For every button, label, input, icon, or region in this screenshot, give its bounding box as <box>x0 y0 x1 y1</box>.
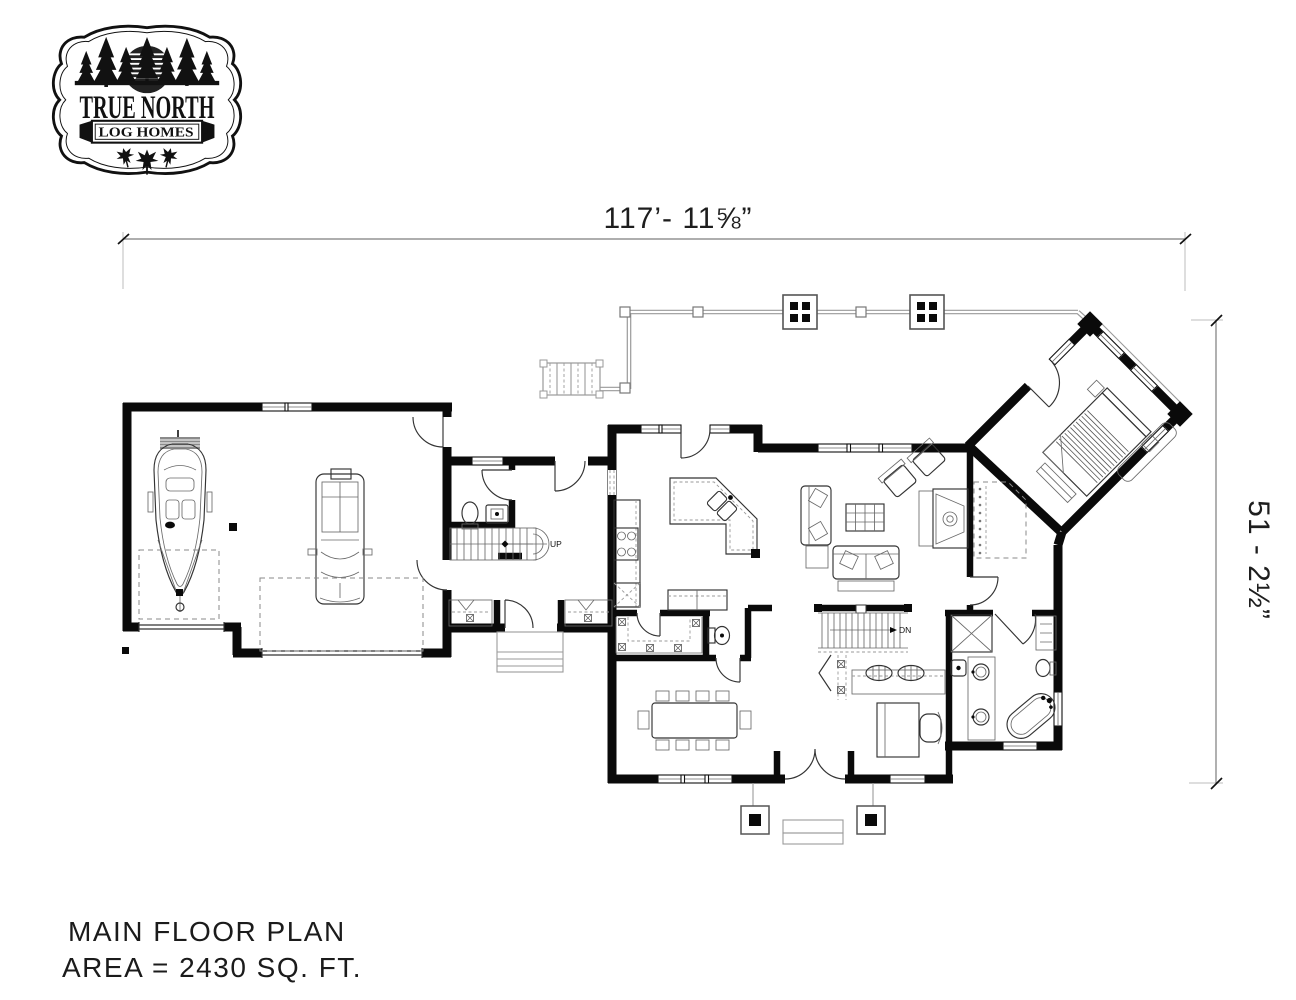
garage-post <box>229 523 237 531</box>
pickup-truck <box>308 469 372 604</box>
range-stove <box>614 528 638 560</box>
great-room-furniture <box>801 438 968 591</box>
kitchen-island <box>670 478 760 558</box>
logo-banner: LOG HOMES <box>80 121 215 143</box>
dimension-width: 117’- 11⅝” <box>118 202 1191 291</box>
wc-toilet <box>708 627 730 645</box>
dimension-width-label: 117’- 11⅝” <box>604 202 753 235</box>
fireplace <box>919 489 968 548</box>
entry-french-doors <box>785 749 845 779</box>
window <box>262 332 1168 783</box>
logo-title-text: TRUE NORTH <box>80 89 215 125</box>
stairs-up-label: UP <box>550 539 562 549</box>
sofa-horizontal <box>833 546 899 591</box>
mudroom-walls <box>443 425 616 783</box>
toilet <box>1036 660 1056 677</box>
dimension-height: 51 - 2½” <box>1189 315 1275 789</box>
mudroom-closets <box>449 600 612 626</box>
porch-steps <box>783 820 843 844</box>
stairs-down: DN <box>814 604 912 700</box>
porch-post <box>857 806 885 834</box>
office-den <box>852 666 945 758</box>
kitchen-sink <box>706 487 741 522</box>
toilet <box>951 660 966 676</box>
shower <box>951 615 992 652</box>
logo-banner-text: LOG HOMES <box>99 124 194 139</box>
buffet <box>668 590 727 610</box>
coffee-table <box>846 504 884 531</box>
master-bath <box>951 615 1061 744</box>
under-stair-closet <box>819 655 846 700</box>
island-post <box>751 549 760 558</box>
deck-steps <box>540 360 603 398</box>
vanity <box>968 657 995 740</box>
lounge-chair <box>878 459 918 499</box>
side-table <box>806 546 828 568</box>
boat <box>148 430 212 612</box>
plan-area: AREA = 2430 SQ. FT. <box>62 952 362 983</box>
stairs-up: UP <box>450 528 562 560</box>
linen-closet <box>1036 616 1056 650</box>
boat-parking-stall <box>139 550 219 619</box>
truck-parking-stall <box>260 578 423 651</box>
dimension-height-label: 51 - 2½” <box>1242 500 1275 620</box>
boat-trailer <box>148 492 212 612</box>
mudroom-interior-window <box>608 470 616 495</box>
true-north-logo: TRUE NORTH LOG HOMES <box>53 26 240 174</box>
garage-door <box>139 622 422 658</box>
plan-title: MAIN FLOOR PLAN <box>68 916 346 947</box>
stairs-down-label: DN <box>899 625 911 635</box>
bar-stool <box>898 666 924 681</box>
kitchen-counter <box>614 500 640 607</box>
floor-plan-drawing: TRUE NORTH LOG HOMES 117’- 11⅝” 51 - 2½” <box>0 0 1296 1000</box>
bathtub <box>1001 688 1060 744</box>
kitchen-wing-walls <box>608 425 912 783</box>
floor-plan-canvas: TRUE NORTH LOG HOMES 117’- 11⅝” 51 - 2½” <box>0 0 1296 1000</box>
nightstand <box>1087 380 1104 397</box>
master-bedroom-walls <box>968 311 1193 532</box>
desk <box>877 703 919 757</box>
dining-table <box>638 691 751 750</box>
side-porch-steps <box>497 632 563 672</box>
entry-porch <box>741 783 885 844</box>
desk-chair <box>920 712 942 744</box>
porch-post <box>741 806 769 834</box>
roof-eave-line <box>1096 318 1188 410</box>
exterior-post <box>122 647 129 654</box>
deck-post <box>620 307 866 393</box>
sofa-vertical <box>801 486 831 545</box>
bar-stool <box>866 666 892 681</box>
pantry <box>616 617 702 653</box>
